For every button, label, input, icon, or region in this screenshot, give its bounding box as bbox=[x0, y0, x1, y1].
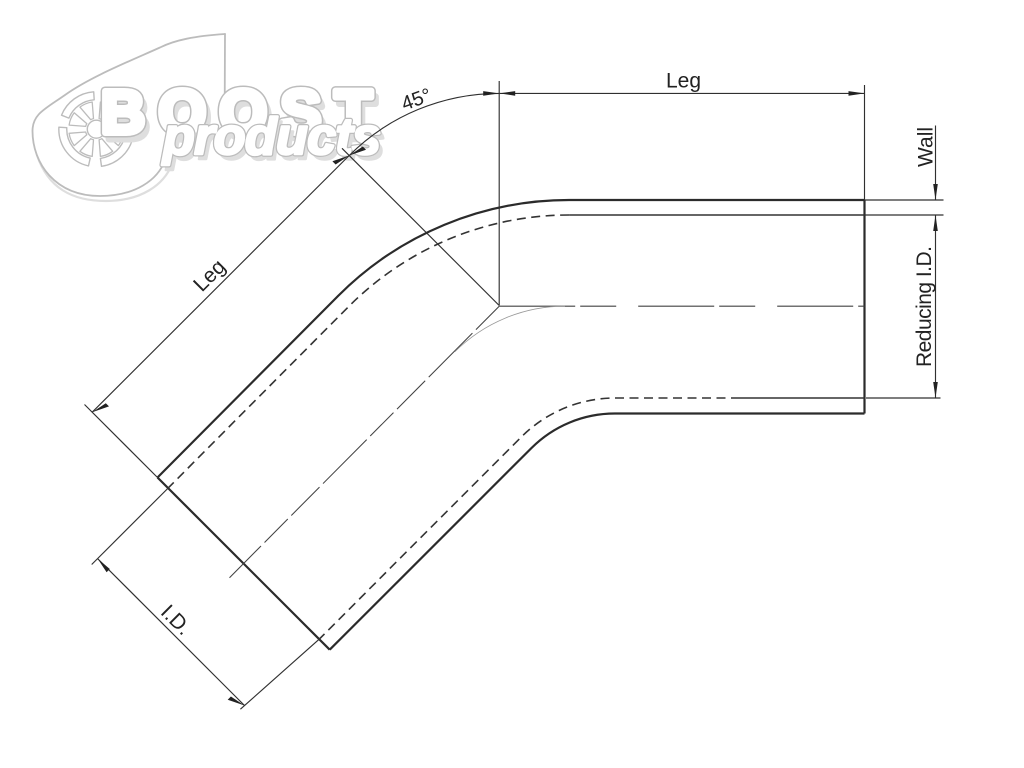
svg-text:I.D.: I.D. bbox=[156, 601, 195, 640]
svg-text:45°: 45° bbox=[399, 84, 435, 115]
svg-text:Reducing I.D.: Reducing I.D. bbox=[913, 246, 936, 367]
svg-text:Wall: Wall bbox=[915, 127, 938, 167]
svg-text:Leg: Leg bbox=[666, 70, 701, 93]
svg-text:Leg: Leg bbox=[189, 255, 230, 296]
